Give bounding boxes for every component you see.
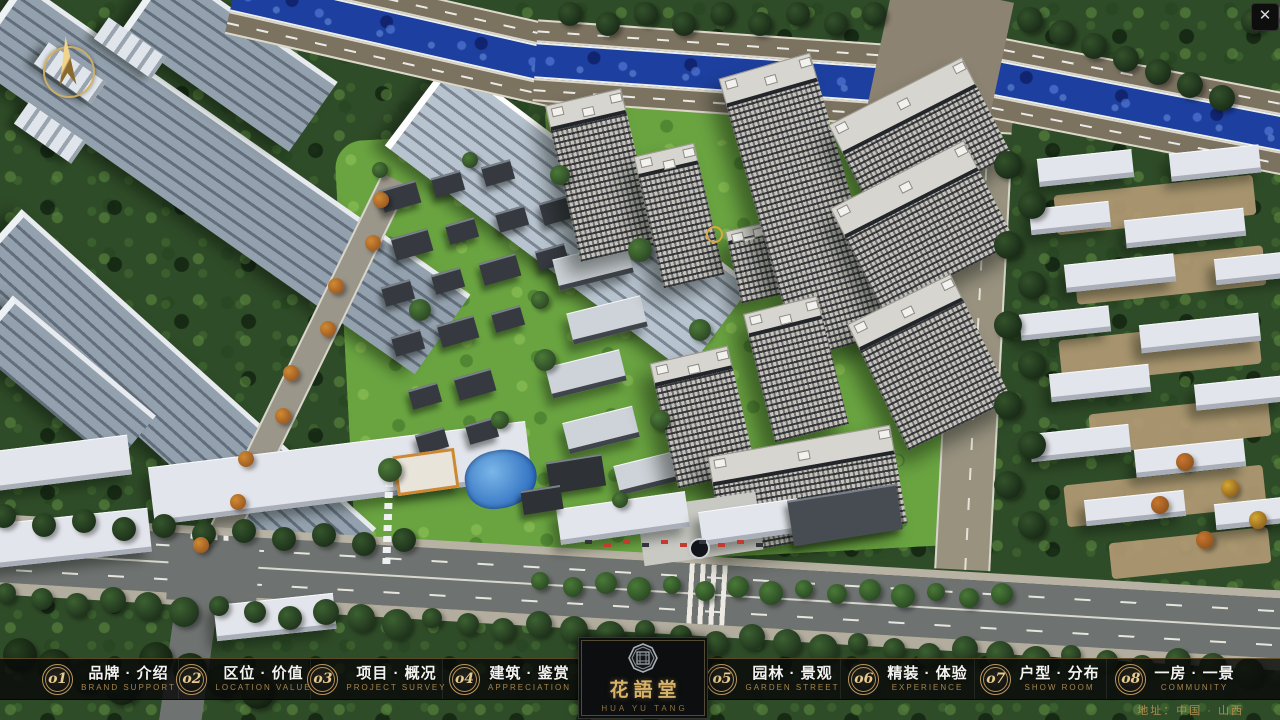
tree <box>994 151 1022 179</box>
parked-car <box>737 540 744 544</box>
rooftop-unit <box>725 78 739 90</box>
menu-number-badge: o3 <box>307 664 338 695</box>
menu-number: o7 <box>986 671 1005 687</box>
menu-label: 精装 · 体验 <box>887 666 967 681</box>
project-logo-panel: 花語堂 HUA YU TANG <box>578 637 708 719</box>
tree <box>563 577 583 597</box>
rooftop-unit <box>898 180 913 193</box>
tree <box>313 599 339 625</box>
tree <box>634 2 658 26</box>
tree <box>169 597 199 627</box>
menu-label: 品牌 · 介绍 <box>88 666 168 681</box>
rooftop-unit <box>763 74 777 86</box>
tree <box>31 588 53 610</box>
menu-item-07-floorplan[interactable]: o7 户型 · 分布 SHOW ROOM <box>974 659 1107 699</box>
menu-number: o2 <box>182 671 201 687</box>
tree <box>531 291 549 309</box>
tree <box>1017 7 1043 33</box>
parked-car <box>604 543 611 547</box>
menu-number-badge: o4 <box>449 664 480 695</box>
menu-number: o4 <box>455 671 474 687</box>
tree <box>230 494 246 510</box>
menu-sublabel: BRAND SUPPORT <box>81 684 176 692</box>
tree <box>672 12 696 36</box>
tree <box>1177 72 1203 98</box>
menu-number-badge: o6 <box>848 664 879 695</box>
menu-number: o5 <box>712 671 731 687</box>
tree <box>650 410 670 430</box>
tree <box>663 576 681 594</box>
parked-car <box>680 543 687 547</box>
rooftop-unit <box>662 159 676 170</box>
menu-number: o6 <box>854 671 873 687</box>
tree <box>628 238 652 262</box>
menu-number: o3 <box>313 671 332 687</box>
tree <box>32 513 56 537</box>
tree <box>1018 431 1046 459</box>
menu-label: 项目 · 概况 <box>356 666 436 681</box>
tree <box>739 624 765 650</box>
rooftop-unit <box>952 61 967 74</box>
menu-item-08-community[interactable]: o8 一房 · 一景 COMMUNITY <box>1108 659 1242 699</box>
tree <box>727 576 749 598</box>
clubhouse-orange-trim <box>393 448 460 496</box>
menu-number-badge: o2 <box>176 664 207 695</box>
tree <box>558 2 582 26</box>
tree <box>378 458 402 482</box>
tree <box>238 451 254 467</box>
menu-sublabel: APPRECIATION <box>488 684 571 692</box>
parked-car <box>699 540 706 544</box>
tree <box>72 509 96 533</box>
menu-sublabel: PROJECT SURVEY <box>346 684 446 692</box>
rooftop-unit <box>941 278 956 291</box>
menu-number: o1 <box>48 671 67 687</box>
rooftop-unit <box>896 97 911 110</box>
aerial-map-viewport[interactable] <box>0 0 1280 720</box>
tree <box>491 411 509 429</box>
menu-label: 建筑 · 鉴赏 <box>489 666 569 681</box>
gold-landscape-ring <box>706 226 723 243</box>
sales-presentation-window: ✕ o1 品牌 · 介绍 BRAND SUPPORT o2 区位 · 价值 LO… <box>0 0 1280 720</box>
menu-sublabel: LOCATION VALUE <box>215 684 311 692</box>
tree <box>1151 496 1169 514</box>
tree <box>320 321 336 337</box>
tree <box>278 606 302 630</box>
low-rise-slab <box>0 435 132 492</box>
tree <box>272 527 296 551</box>
tree <box>994 391 1022 419</box>
menu-item-01-brand[interactable]: o1 品牌 · 介绍 BRAND SUPPORT <box>40 659 179 699</box>
tree <box>748 12 772 36</box>
parked-car <box>642 543 649 547</box>
rooftop-unit <box>900 305 915 318</box>
tree <box>275 408 291 424</box>
tree <box>759 581 783 605</box>
logo-subtitle: HUA YU TANG <box>601 704 687 713</box>
tree <box>862 2 886 26</box>
tree <box>824 12 848 36</box>
close-button[interactable]: ✕ <box>1251 3 1279 31</box>
tree <box>1221 479 1239 497</box>
menu-sublabel: EXPERIENCE <box>892 684 964 692</box>
tree <box>795 580 813 598</box>
tree <box>1145 59 1171 85</box>
tree <box>365 235 381 251</box>
tree <box>1018 271 1046 299</box>
tree <box>1018 511 1046 539</box>
rooftop-unit <box>609 92 623 103</box>
tree <box>612 492 628 508</box>
menu-label: 一房 · 一景 <box>1154 666 1234 681</box>
parked-car <box>585 540 592 544</box>
menu-label: 园林 · 景观 <box>752 666 832 681</box>
tree <box>689 319 711 341</box>
tree <box>347 604 375 632</box>
tree <box>1018 191 1046 219</box>
tree <box>994 471 1022 499</box>
rooftop-unit <box>639 157 653 168</box>
rooftop-unit <box>797 450 810 461</box>
tree <box>457 613 479 635</box>
tree <box>786 2 810 26</box>
tree <box>152 514 176 538</box>
tree <box>695 581 715 601</box>
tree <box>232 519 256 543</box>
rooftop-unit <box>805 300 819 312</box>
parked-car <box>661 540 668 544</box>
tree <box>0 583 16 603</box>
low-rise-slab <box>1019 305 1111 340</box>
menu-item-04-building[interactable]: o4 建筑 · 鉴赏 APPRECIATION <box>444 659 576 699</box>
tree <box>100 587 126 613</box>
parked-car <box>623 540 630 544</box>
tree <box>550 165 570 185</box>
tree <box>994 311 1022 339</box>
project-address: 地址：中国 · 山西 <box>1137 702 1244 718</box>
parked-car <box>756 543 763 547</box>
menu-label: 区位 · 价值 <box>223 666 303 681</box>
rooftop-unit <box>582 106 596 117</box>
tree <box>352 532 376 556</box>
menu-sublabel: SHOW ROOM <box>1025 684 1095 692</box>
tree <box>991 583 1013 605</box>
tree <box>710 2 734 26</box>
tree <box>373 192 389 208</box>
rooftop-unit <box>749 314 763 326</box>
rooftop-unit <box>878 429 891 440</box>
rooftop-unit <box>687 364 701 375</box>
tree <box>209 596 229 616</box>
rooftop-unit <box>655 364 669 375</box>
rooftop-unit <box>779 314 793 326</box>
menu-number: o8 <box>1121 671 1140 687</box>
rooftop-unit <box>954 144 969 157</box>
rooftop-unit <box>716 350 730 361</box>
rooftop-unit <box>834 121 849 134</box>
tree <box>462 152 478 168</box>
tree <box>1049 20 1075 46</box>
tree <box>1209 85 1235 111</box>
menu-item-05-garden[interactable]: o5 园林 · 景观 GARDEN STREET <box>706 659 841 699</box>
tree <box>627 577 651 601</box>
rooftop-unit <box>713 458 726 469</box>
ground-path <box>1109 527 1272 580</box>
tree <box>372 162 388 178</box>
tree <box>526 611 552 637</box>
tree <box>65 593 89 617</box>
menu-number-badge: o8 <box>1115 664 1146 695</box>
menu-sublabel: GARDEN STREET <box>745 684 839 692</box>
menu-number-badge: o5 <box>706 664 737 695</box>
tree <box>1196 531 1214 549</box>
tree <box>1081 33 1107 59</box>
tree <box>491 618 515 642</box>
rooftop-unit <box>682 147 696 158</box>
tree <box>409 299 431 321</box>
tree <box>534 349 556 371</box>
tree <box>1176 453 1194 471</box>
tree <box>848 633 868 653</box>
tree <box>1113 46 1139 72</box>
rooftop-unit <box>853 320 868 333</box>
tree <box>883 638 905 660</box>
tree <box>596 12 620 36</box>
tree <box>959 588 979 608</box>
logo-seal-icon <box>628 643 658 673</box>
logo-title: 花語堂 <box>609 675 681 702</box>
tree <box>422 608 442 628</box>
tree <box>994 231 1022 259</box>
rooftop-unit <box>551 106 565 117</box>
tree <box>595 572 617 594</box>
tree <box>382 609 412 639</box>
low-rise-slab <box>1036 149 1133 187</box>
menu-number-badge: o1 <box>42 664 73 695</box>
menu-number-badge: o7 <box>980 664 1011 695</box>
menu-item-06-decor[interactable]: o6 精装 · 体验 EXPERIENCE <box>842 659 975 699</box>
tree <box>193 537 209 553</box>
compass-icon <box>40 34 96 96</box>
menu-label: 户型 · 分布 <box>1019 666 1099 681</box>
menu-item-03-project[interactable]: o3 项目 · 概况 PROJECT SURVEY <box>312 659 443 699</box>
menu-item-02-location[interactable]: o2 区位 · 价值 LOCATION VALUE <box>178 659 311 699</box>
tree <box>134 592 162 620</box>
tree <box>531 572 549 590</box>
tree <box>1018 351 1046 379</box>
tree <box>283 365 299 381</box>
tree <box>244 601 266 623</box>
parked-car <box>718 543 725 547</box>
tree <box>773 629 801 657</box>
rooftop-unit <box>836 204 851 217</box>
menu-sublabel: COMMUNITY <box>1161 684 1228 692</box>
tree <box>1249 511 1267 529</box>
rooftop-unit <box>799 57 813 69</box>
